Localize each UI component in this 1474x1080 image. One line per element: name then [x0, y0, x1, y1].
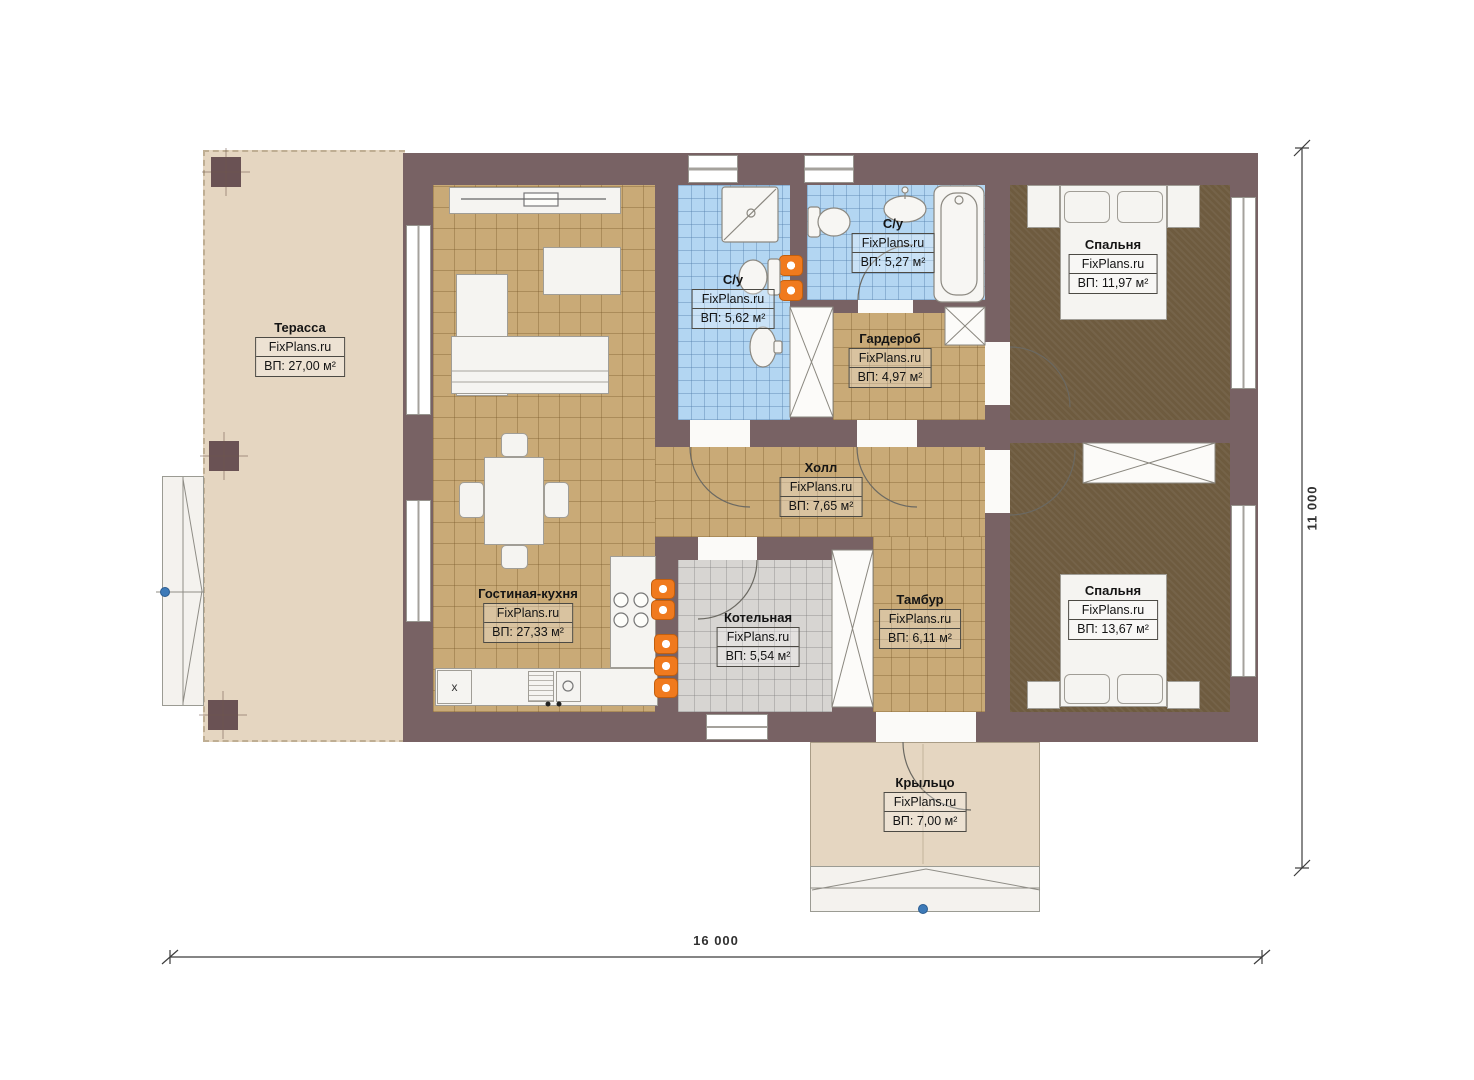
room-area: ВП: 7,00 м² — [885, 811, 966, 830]
room-name: Гостиная-кухня — [478, 586, 578, 601]
brand-link: FixPlans.ru — [853, 234, 934, 252]
floor-plan-canvas: x — [0, 0, 1474, 1080]
room-label-bathroom2: С/у FixPlans.ruВП: 5,27 м² — [852, 216, 935, 273]
room-label-bedroom2: Спальня FixPlans.ruВП: 13,67 м² — [1068, 583, 1158, 640]
room-area: ВП: 27,00 м² — [256, 356, 344, 375]
room-label-boiler: Котельная FixPlans.ruВП: 5,54 м² — [717, 610, 800, 667]
room-label-wardrobe: Гардероб FixPlans.ruВП: 4,97 м² — [849, 331, 932, 388]
room-area: ВП: 6,11 м² — [880, 628, 960, 647]
room-area: ВП: 5,62 м² — [693, 308, 774, 327]
brand-link: FixPlans.ru — [484, 604, 572, 622]
room-name: Терасса — [255, 320, 345, 335]
room-label-hall: Холл FixPlans.ruВП: 7,65 м² — [780, 460, 863, 517]
room-name: Крыльцо — [884, 775, 967, 790]
stove-burner — [614, 613, 628, 627]
stove-burner — [634, 613, 648, 627]
room-area: ВП: 5,54 м² — [718, 646, 799, 665]
brand-link: FixPlans.ru — [850, 349, 931, 367]
room-area: ВП: 27,33 м² — [484, 622, 572, 641]
room-name: С/у — [852, 216, 935, 231]
entry-marker-dot — [919, 905, 928, 914]
room-label-vestibule: Тамбур FixPlans.ruВП: 6,11 м² — [879, 592, 961, 649]
room-name: Гардероб — [849, 331, 932, 346]
room-name: Котельная — [717, 610, 800, 625]
brand-link: FixPlans.ru — [781, 478, 862, 496]
brand-link: FixPlans.ru — [880, 610, 960, 628]
brand-link: FixPlans.ru — [256, 338, 344, 356]
entry-marker-dot — [161, 588, 170, 597]
brand-link: FixPlans.ru — [1070, 255, 1157, 273]
room-area: ВП: 4,97 м² — [850, 367, 931, 386]
brand-link: FixPlans.ru — [1069, 601, 1157, 619]
room-area: ВП: 5,27 м² — [853, 252, 934, 271]
brand-link: FixPlans.ru — [718, 628, 799, 646]
room-label-living-kitchen: Гостиная-кухня FixPlans.ruВП: 27,33 м² — [478, 586, 578, 643]
room-name: Холл — [780, 460, 863, 475]
room-area: ВП: 7,65 м² — [781, 496, 862, 515]
room-name: Спальня — [1069, 237, 1158, 252]
room-name: Спальня — [1068, 583, 1158, 598]
door-arcs — [690, 245, 1075, 810]
brand-link: FixPlans.ru — [885, 793, 966, 811]
room-name: Тамбур — [879, 592, 961, 607]
room-label-porch: Крыльцо FixPlans.ruВП: 7,00 м² — [884, 775, 967, 832]
room-label-bedroom1: Спальня FixPlans.ruВП: 11,97 м² — [1069, 237, 1158, 294]
room-name: С/у — [692, 272, 775, 287]
sink — [750, 327, 776, 367]
room-label-terrace: Терасса FixPlans.ruВП: 27,00 м² — [255, 320, 345, 377]
brand-link: FixPlans.ru — [693, 290, 774, 308]
toilet — [818, 208, 850, 236]
plan-vector-overlay — [0, 0, 1474, 1080]
room-area: ВП: 13,67 м² — [1069, 619, 1157, 638]
column-ticks — [199, 148, 250, 739]
room-area: ВП: 11,97 м² — [1070, 273, 1157, 292]
steps-markings — [156, 477, 1040, 914]
room-label-bathroom1: С/у FixPlans.ruВП: 5,62 м² — [692, 272, 775, 329]
stove-burner — [614, 593, 628, 607]
stove-burner — [634, 593, 648, 607]
